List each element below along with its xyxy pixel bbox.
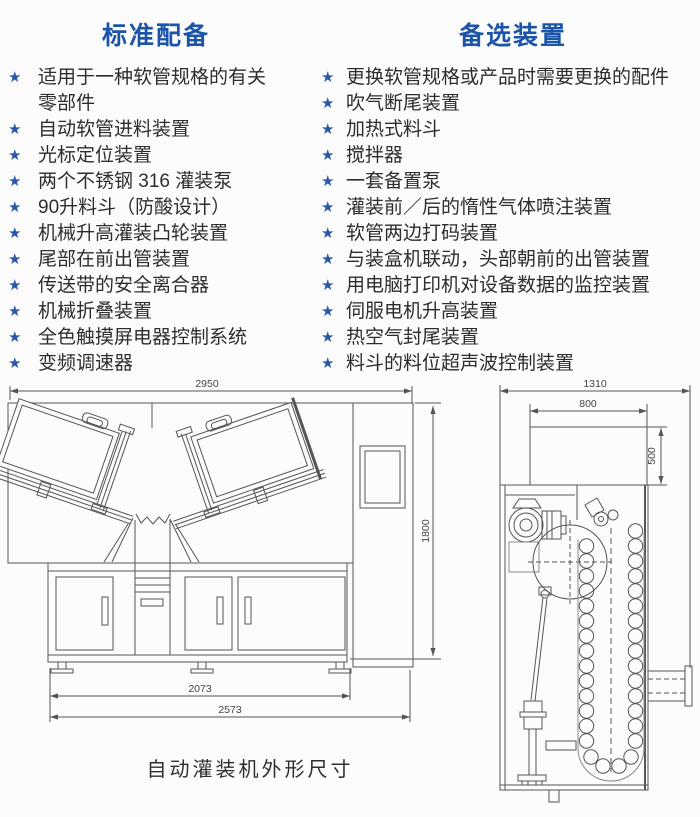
machine-feet xyxy=(51,662,351,673)
dimension-label-width-top: 2950 xyxy=(195,378,219,390)
left-feeder-cassette xyxy=(0,386,160,527)
turntable xyxy=(528,520,612,604)
discharge-bracket xyxy=(648,666,692,706)
dimension-label-rear-width: 800 xyxy=(579,398,597,410)
dimension-label-width-inner: 2073 xyxy=(188,683,212,695)
dimension-label-depth-overall: 1310 xyxy=(583,378,607,390)
crank xyxy=(585,498,618,526)
top-view: 1310 800 500 xyxy=(500,378,692,802)
linkage-rod xyxy=(518,587,576,785)
dimension-label-width-overall: 2573 xyxy=(218,704,242,716)
page: 标准配备 ★适用于一种软管规格的有关零部件 ★自动软管进料装置 ★光标定位装置 … xyxy=(0,0,700,817)
drawing-caption: 自动灌装机外形尺寸 xyxy=(100,753,400,782)
machine-dimension-drawing: 2950 1800 2073 2573 xyxy=(0,0,700,817)
dimension-label-rear-height: 500 xyxy=(646,447,658,465)
dimension-label-height: 1800 xyxy=(420,519,432,543)
front-view: 2950 1800 2073 2573 xyxy=(0,378,441,722)
motor xyxy=(509,499,566,572)
right-feeder-cassette xyxy=(146,390,327,532)
